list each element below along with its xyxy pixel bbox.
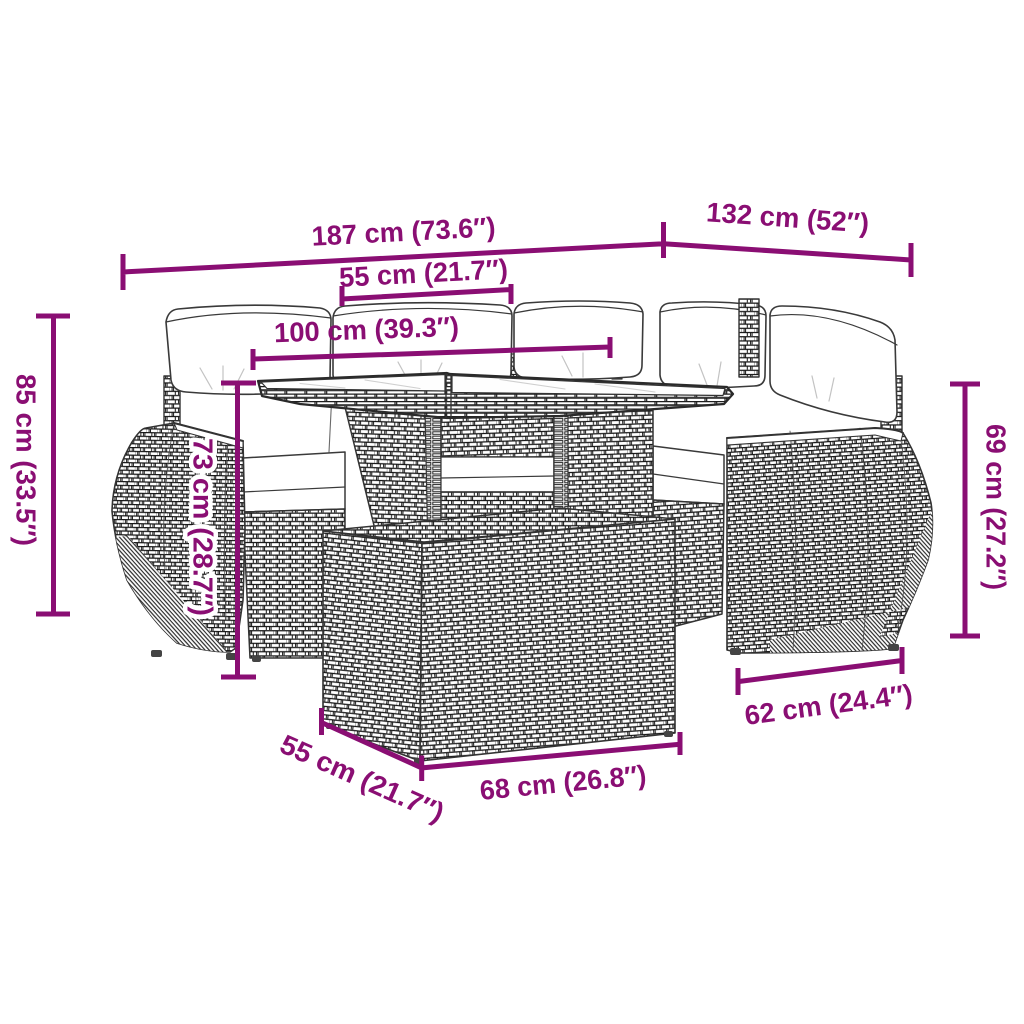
svg-text:100 cm (39.3″): 100 cm (39.3″): [274, 311, 460, 348]
svg-text:85 cm (33.5″): 85 cm (33.5″): [11, 374, 42, 546]
svg-text:69 cm (27.2″): 69 cm (27.2″): [981, 424, 1012, 590]
svg-text:73 cm (28.7″): 73 cm (28.7″): [188, 438, 219, 616]
